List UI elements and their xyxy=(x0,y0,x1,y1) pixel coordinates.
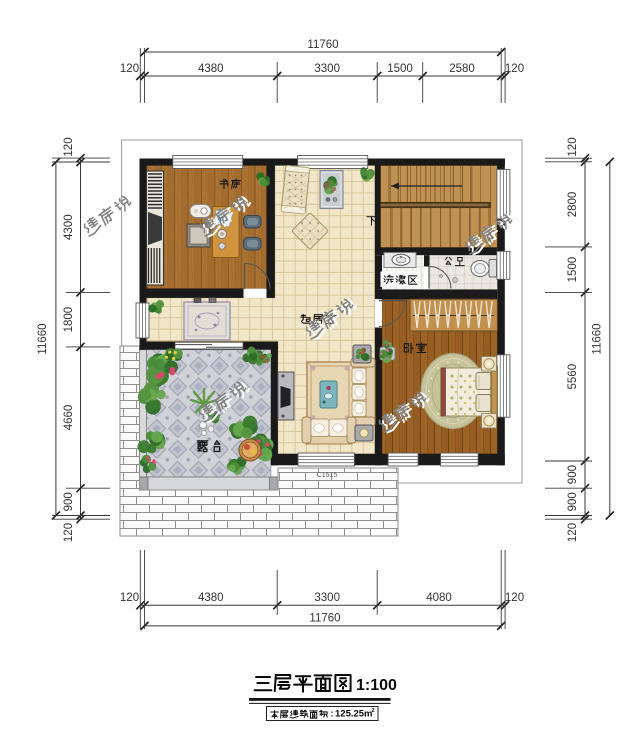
svg-text:2: 2 xyxy=(372,708,375,714)
svg-text:1:100: 1:100 xyxy=(356,677,397,694)
svg-text:125.25m: 125.25m xyxy=(335,709,373,720)
svg-text:120: 120 xyxy=(505,592,524,604)
svg-text:120: 120 xyxy=(63,137,75,156)
svg-text:5560: 5560 xyxy=(567,364,579,390)
svg-text:4380: 4380 xyxy=(198,592,224,604)
svg-text:1500: 1500 xyxy=(567,257,579,283)
svg-text:900: 900 xyxy=(63,492,75,511)
svg-text:120: 120 xyxy=(120,592,139,604)
svg-text:1500: 1500 xyxy=(387,63,413,75)
svg-text:900: 900 xyxy=(567,465,579,484)
svg-text:2800: 2800 xyxy=(567,192,579,218)
svg-text::: : xyxy=(331,709,334,719)
svg-text:4660: 4660 xyxy=(63,405,75,431)
svg-text:4380: 4380 xyxy=(198,63,224,75)
svg-text:1800: 1800 xyxy=(63,307,75,333)
svg-text:120: 120 xyxy=(63,523,75,542)
svg-text:11760: 11760 xyxy=(307,39,338,51)
svg-text:11660: 11660 xyxy=(592,323,604,354)
svg-text:120: 120 xyxy=(567,523,579,542)
svg-text:3300: 3300 xyxy=(314,592,340,604)
svg-text:120: 120 xyxy=(120,63,139,75)
svg-text:120: 120 xyxy=(567,137,579,156)
svg-text:11760: 11760 xyxy=(309,613,340,625)
svg-text:4080: 4080 xyxy=(426,592,452,604)
svg-text:900: 900 xyxy=(567,492,579,511)
svg-text:3300: 3300 xyxy=(314,63,340,75)
svg-text:120: 120 xyxy=(505,63,524,75)
svg-text:2580: 2580 xyxy=(449,63,475,75)
svg-text:11660: 11660 xyxy=(37,323,49,354)
svg-text:C1515: C1515 xyxy=(317,472,338,479)
svg-text:4300: 4300 xyxy=(63,214,75,240)
